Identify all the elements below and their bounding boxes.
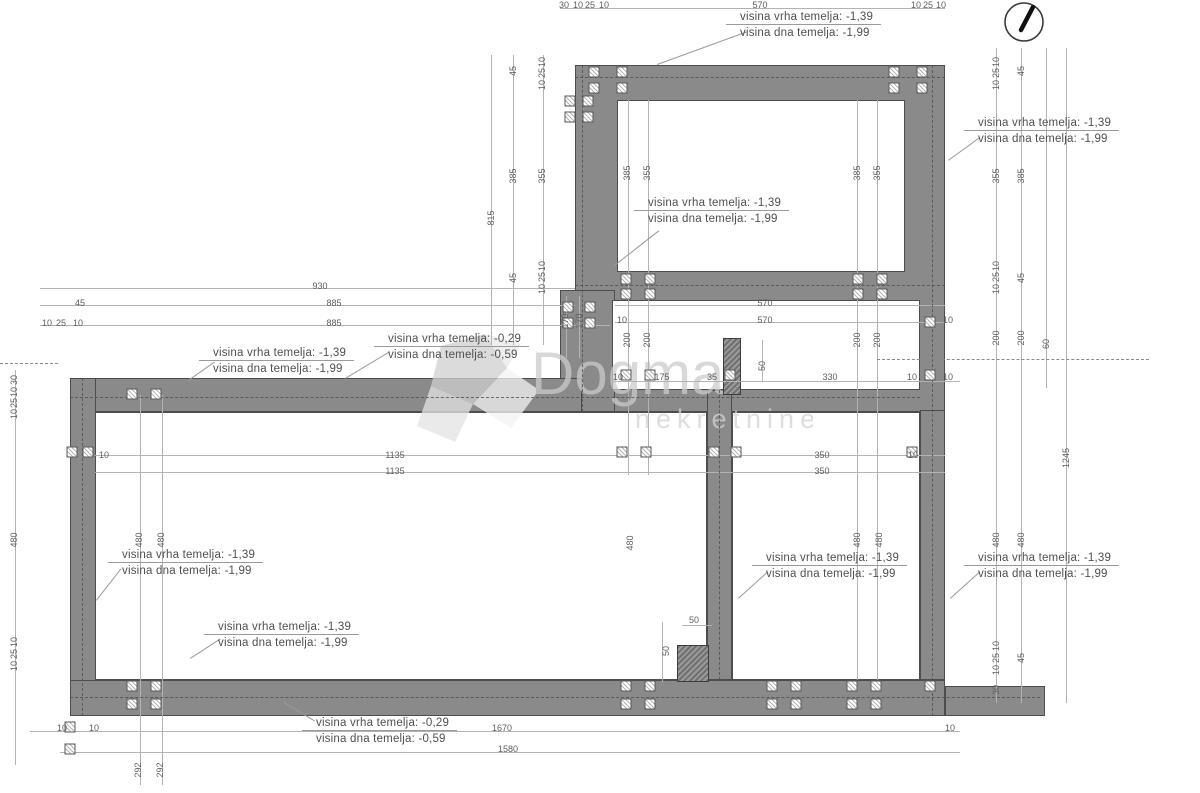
dimension-label: 10 [73, 318, 83, 328]
annotation-bottom-line: visina dna temelja: -1,99 [766, 567, 899, 581]
dimension-label: 10 [573, 0, 583, 10]
leader-underline [752, 565, 907, 566]
wall-centerline [932, 65, 933, 716]
dimension-label: 10 [943, 372, 953, 382]
foundation-wall [70, 680, 945, 716]
dimension-line [615, 322, 945, 323]
wall-section-marker [889, 67, 900, 78]
dimension-label: 25 [537, 68, 547, 78]
leader-underline [634, 210, 789, 211]
wall-section-marker [617, 67, 628, 78]
leader-line [950, 571, 980, 599]
wall-section-marker [791, 699, 802, 710]
leader-line [948, 138, 979, 161]
dimension-label: 50 [689, 615, 699, 625]
wall-section-marker [767, 681, 778, 692]
dimension-label: 25 [585, 0, 595, 10]
dimension-label: 45 [1016, 653, 1026, 663]
dimension-label: 10 [991, 641, 1001, 651]
dimension-label: 355 [872, 165, 882, 180]
dimension-label: 10 [42, 318, 52, 328]
room-interior [617, 100, 905, 272]
dimension-label: 570 [752, 0, 767, 10]
elevation-annotation: visina vrha temelja: -1,39visina dna tem… [218, 620, 351, 650]
dimension-label: 30 [559, 0, 569, 10]
wall-section-marker [725, 370, 736, 381]
leader-line [657, 32, 747, 65]
dimension-label: 170 [574, 313, 584, 328]
dimension-label: 30 [9, 375, 19, 385]
annotation-bottom-line: visina dna temelja: -1,99 [122, 564, 255, 578]
dimension-line [1046, 48, 1047, 388]
wall-section-marker [917, 67, 928, 78]
wall-section-marker [565, 96, 576, 107]
dimension-line [996, 48, 997, 703]
dimension-label: 10 [991, 261, 1001, 271]
wall-section-marker [67, 447, 78, 458]
dimension-label: 50 [661, 646, 671, 656]
dimension-label: 570 [757, 298, 772, 308]
dimension-line [491, 55, 492, 345]
wall-section-marker [641, 447, 652, 458]
wall-centerline [719, 390, 720, 680]
wall-section-marker [583, 112, 594, 123]
dimension-label: 330 [822, 372, 837, 382]
dimension-label: 200 [852, 332, 862, 347]
wall-centerline [82, 378, 83, 716]
wall-section-marker [889, 83, 900, 94]
dimension-label: 10 [943, 315, 953, 325]
wall-section-marker [847, 699, 858, 710]
dimension-label: 10 [89, 723, 99, 733]
dimension-line [40, 288, 575, 289]
dimension-label: 10 [991, 284, 1001, 294]
dimension-label: 480 [991, 532, 1001, 547]
wall-section-marker [871, 699, 882, 710]
wall-section-marker [645, 274, 656, 285]
dimension-label: 10 [99, 450, 109, 460]
wall-section-marker [151, 681, 162, 692]
elevation-annotation: visina vrha temelja: -1,39visina dna tem… [766, 551, 899, 581]
annotation-top-line: visina vrha temelja: -0,29 [388, 332, 521, 346]
dimension-line [543, 55, 544, 345]
leader-underline [302, 730, 457, 731]
dimension-label: 45 [1016, 66, 1026, 76]
dimension-label: 10 [617, 315, 627, 325]
wall-centerline [70, 397, 920, 398]
dimension-label: 25 [991, 272, 1001, 282]
dimension-label: 60 [1041, 339, 1051, 349]
dimension-label: 170 [560, 313, 570, 328]
dimension-label: 350 [814, 466, 829, 476]
annotation-bottom-line: visina dna temelja: -1,99 [218, 636, 351, 650]
wall-section-marker [847, 681, 858, 692]
dimension-label: 30 [991, 685, 1001, 695]
foundation-wall [70, 378, 582, 412]
annotation-bottom-line: visina dna temelja: -1,99 [648, 212, 781, 226]
annotation-top-line: visina vrha temelja: -1,39 [213, 346, 346, 360]
dimension-label: 10 [991, 665, 1001, 675]
dimension-label: 385 [1016, 168, 1026, 183]
dimension-label: 10 [537, 261, 547, 271]
wall-centerline [575, 285, 945, 286]
wall-section-marker [585, 318, 596, 329]
dimension-label: 480 [625, 535, 635, 550]
wall-section-marker [645, 289, 656, 300]
annotation-bottom-line: visina dna temelja: -1,99 [213, 362, 346, 376]
dimension-label: 10 [537, 80, 547, 90]
annotation-top-line: visina vrha temelja: -0,29 [316, 716, 449, 730]
dimension-label: 815 [486, 210, 496, 225]
elevation-annotation: visina vrha temelja: -1,39visina dna tem… [978, 551, 1111, 581]
leader-underline [108, 562, 263, 563]
elevation-annotation: visina vrha temelja: -1,39visina dna tem… [648, 196, 781, 226]
leader-underline [964, 130, 1119, 131]
dimension-label: 50 [757, 361, 767, 371]
dimension-label: 885 [326, 298, 341, 308]
elevation-annotation: visina vrha temelja: -1,39visina dna tem… [740, 10, 873, 40]
dimension-label: 1670 [492, 723, 512, 733]
dimension-label: 480 [134, 532, 144, 547]
dimension-line [1021, 48, 1022, 703]
dimension-label: 930 [312, 281, 327, 291]
dimension-label: 885 [326, 318, 341, 328]
dimension-label: 10 [991, 57, 1001, 67]
elevation-annotation: visina vrha temelja: -0,29visina dna tem… [316, 716, 449, 746]
wall-section-marker [731, 447, 742, 458]
leader-line [345, 351, 390, 379]
annotation-bottom-line: visina dna temelja: -1,99 [978, 132, 1111, 146]
north-arrow-icon [1000, 0, 1048, 48]
wall-section-marker [563, 302, 574, 313]
annotation-bottom-line: visina dna temelja: -1,99 [978, 567, 1111, 581]
dimension-label: 200 [642, 332, 652, 347]
dimension-label: 10 [9, 661, 19, 671]
dimension-label: 200 [991, 330, 1001, 345]
annotation-top-line: visina vrha temelja: -1,39 [218, 620, 351, 634]
wall-section-marker [871, 681, 882, 692]
dimension-label: 35 [707, 372, 717, 382]
dimension-line [140, 395, 141, 785]
wall-centerline [70, 697, 1040, 698]
annotation-top-line: visina vrha temelja: -1,39 [766, 551, 899, 565]
leader-underline [374, 346, 529, 347]
foundation-plan-drawing: Dogma nekretnine 30102510570102510451025… [0, 0, 1200, 793]
dimension-label: 292 [133, 762, 143, 777]
dimension-label: 10 [57, 723, 67, 733]
wall-section-marker [589, 67, 600, 78]
dimension-label: 10 [907, 372, 917, 382]
dimension-line [628, 100, 629, 475]
dimension-label: 10 [9, 387, 19, 397]
dimension-label: 292 [155, 762, 165, 777]
wall-section-marker [127, 389, 138, 400]
dimension-line [513, 55, 514, 345]
dimension-label: 1245 [1061, 448, 1071, 468]
wall-section-marker [925, 681, 936, 692]
dimension-label: 10 [537, 284, 547, 294]
dimension-label: 10 [936, 0, 946, 10]
wall-section-marker [877, 289, 888, 300]
wall-section-marker [925, 317, 936, 328]
dimension-label: 355 [642, 165, 652, 180]
dimension-label: 10 [908, 450, 918, 460]
dimension-label: 480 [1016, 532, 1026, 547]
wall-section-marker [617, 447, 628, 458]
dimension-label: 200 [872, 332, 882, 347]
dimension-label: 1580 [498, 744, 518, 754]
dimension-label: 10 [911, 0, 921, 10]
annotation-bottom-line: visina dna temelja: -0,59 [316, 732, 449, 746]
wall-section-marker [925, 370, 936, 381]
dimension-line [162, 395, 163, 785]
wall-section-marker [83, 447, 94, 458]
dimension-label: 10 [9, 637, 19, 647]
wall-section-marker [617, 83, 628, 94]
elevation-annotation: visina vrha temelja: -0,29visina dna tem… [388, 332, 521, 362]
annotation-top-line: visina vrha temelja: -1,39 [648, 196, 781, 210]
dimension-label: 480 [156, 532, 166, 547]
wall-section-marker [583, 96, 594, 107]
extension-dash-line [877, 359, 1149, 360]
dimension-label: 350 [814, 450, 829, 460]
dimension-line [857, 100, 858, 680]
concrete-pier [723, 338, 741, 395]
wall-section-marker [127, 681, 138, 692]
dimension-label: 25 [56, 318, 66, 328]
dimension-label: 25 [991, 68, 1001, 78]
annotation-bottom-line: visina dna temelja: -1,99 [740, 26, 873, 40]
wall-section-marker [709, 447, 720, 458]
dimension-label: 385 [622, 165, 632, 180]
wall-section-marker [127, 699, 138, 710]
dimension-label: 45 [75, 298, 85, 308]
wall-step [677, 645, 709, 682]
dimension-label: 10 [599, 0, 609, 10]
wall-section-marker [645, 699, 656, 710]
wall-section-marker [877, 274, 888, 285]
dimension-label: 45 [1016, 273, 1026, 283]
dimension-label: 355 [991, 168, 1001, 183]
wall-section-marker [853, 289, 864, 300]
dimension-label: 1135 [385, 466, 404, 476]
extension-dash-line [0, 363, 58, 364]
foundation-wall [70, 378, 96, 716]
elevation-annotation: visina vrha temelja: -1,39visina dna tem… [213, 346, 346, 376]
wall-section-marker [65, 744, 76, 755]
dimension-label: 25 [991, 653, 1001, 663]
dimension-line [682, 625, 712, 626]
leader-underline [726, 24, 881, 25]
dimension-label: 480 [852, 532, 862, 547]
annotation-top-line: visina vrha temelja: -1,39 [978, 551, 1111, 565]
dimension-label: 10 [945, 723, 955, 733]
dimension-label: 10 [537, 57, 547, 67]
dimension-label: 200 [622, 332, 632, 347]
leader-underline [204, 634, 359, 635]
dimension-line [15, 370, 16, 765]
dimension-label: 175 [654, 372, 669, 382]
dimension-line [1066, 48, 1067, 703]
wall-section-marker [853, 274, 864, 285]
wall-section-marker [621, 699, 632, 710]
elevation-annotation: visina vrha temelja: -1,39visina dna tem… [122, 548, 255, 578]
dimension-label: 200 [1016, 330, 1026, 345]
wall-section-marker [791, 681, 802, 692]
dimension-label: 10 [991, 80, 1001, 90]
wall-section-marker [767, 699, 778, 710]
annotation-top-line: visina vrha temelja: -1,39 [740, 10, 873, 24]
dimension-label: 480 [9, 532, 19, 547]
dimension-label: 45 [508, 273, 518, 283]
dimension-label: 25 [9, 649, 19, 659]
dimension-line [40, 305, 575, 306]
wall-section-marker [589, 83, 600, 94]
annotation-top-line: visina vrha temelja: -1,39 [122, 548, 255, 562]
wall-section-marker [585, 302, 596, 313]
dimension-label: 355 [537, 168, 547, 183]
dimension-line [877, 100, 878, 680]
wall-section-marker [151, 699, 162, 710]
compass [1000, 0, 1048, 48]
wall-section-marker [917, 83, 928, 94]
dimension-label: 480 [874, 532, 884, 547]
dimension-label: 45 [508, 66, 518, 76]
dimension-label: 570 [757, 315, 772, 325]
dimension-label: 25 [537, 272, 547, 282]
wall-section-marker [621, 289, 632, 300]
elevation-annotation: visina vrha temelja: -1,39visina dna tem… [978, 116, 1111, 146]
dimension-label: 25 [923, 0, 933, 10]
wall-section-marker [621, 681, 632, 692]
annotation-top-line: visina vrha temelja: -1,39 [978, 116, 1111, 130]
dimension-line [615, 305, 945, 306]
wall-section-marker [565, 112, 576, 123]
annotation-bottom-line: visina dna temelja: -0,59 [388, 348, 521, 362]
dimension-label: 25 [9, 398, 19, 408]
leader-underline [964, 565, 1119, 566]
dimension-label: 10 [613, 372, 623, 382]
leader-underline [199, 360, 354, 361]
wall-section-marker [645, 681, 656, 692]
wall-section-marker [151, 389, 162, 400]
dimension-label: 385 [508, 168, 518, 183]
dimension-label: 385 [852, 165, 862, 180]
wall-section-marker [621, 274, 632, 285]
dimension-label: 10 [9, 409, 19, 419]
dimension-line [40, 325, 610, 326]
dimension-line [648, 100, 649, 475]
dimension-label: 1135 [385, 450, 404, 460]
